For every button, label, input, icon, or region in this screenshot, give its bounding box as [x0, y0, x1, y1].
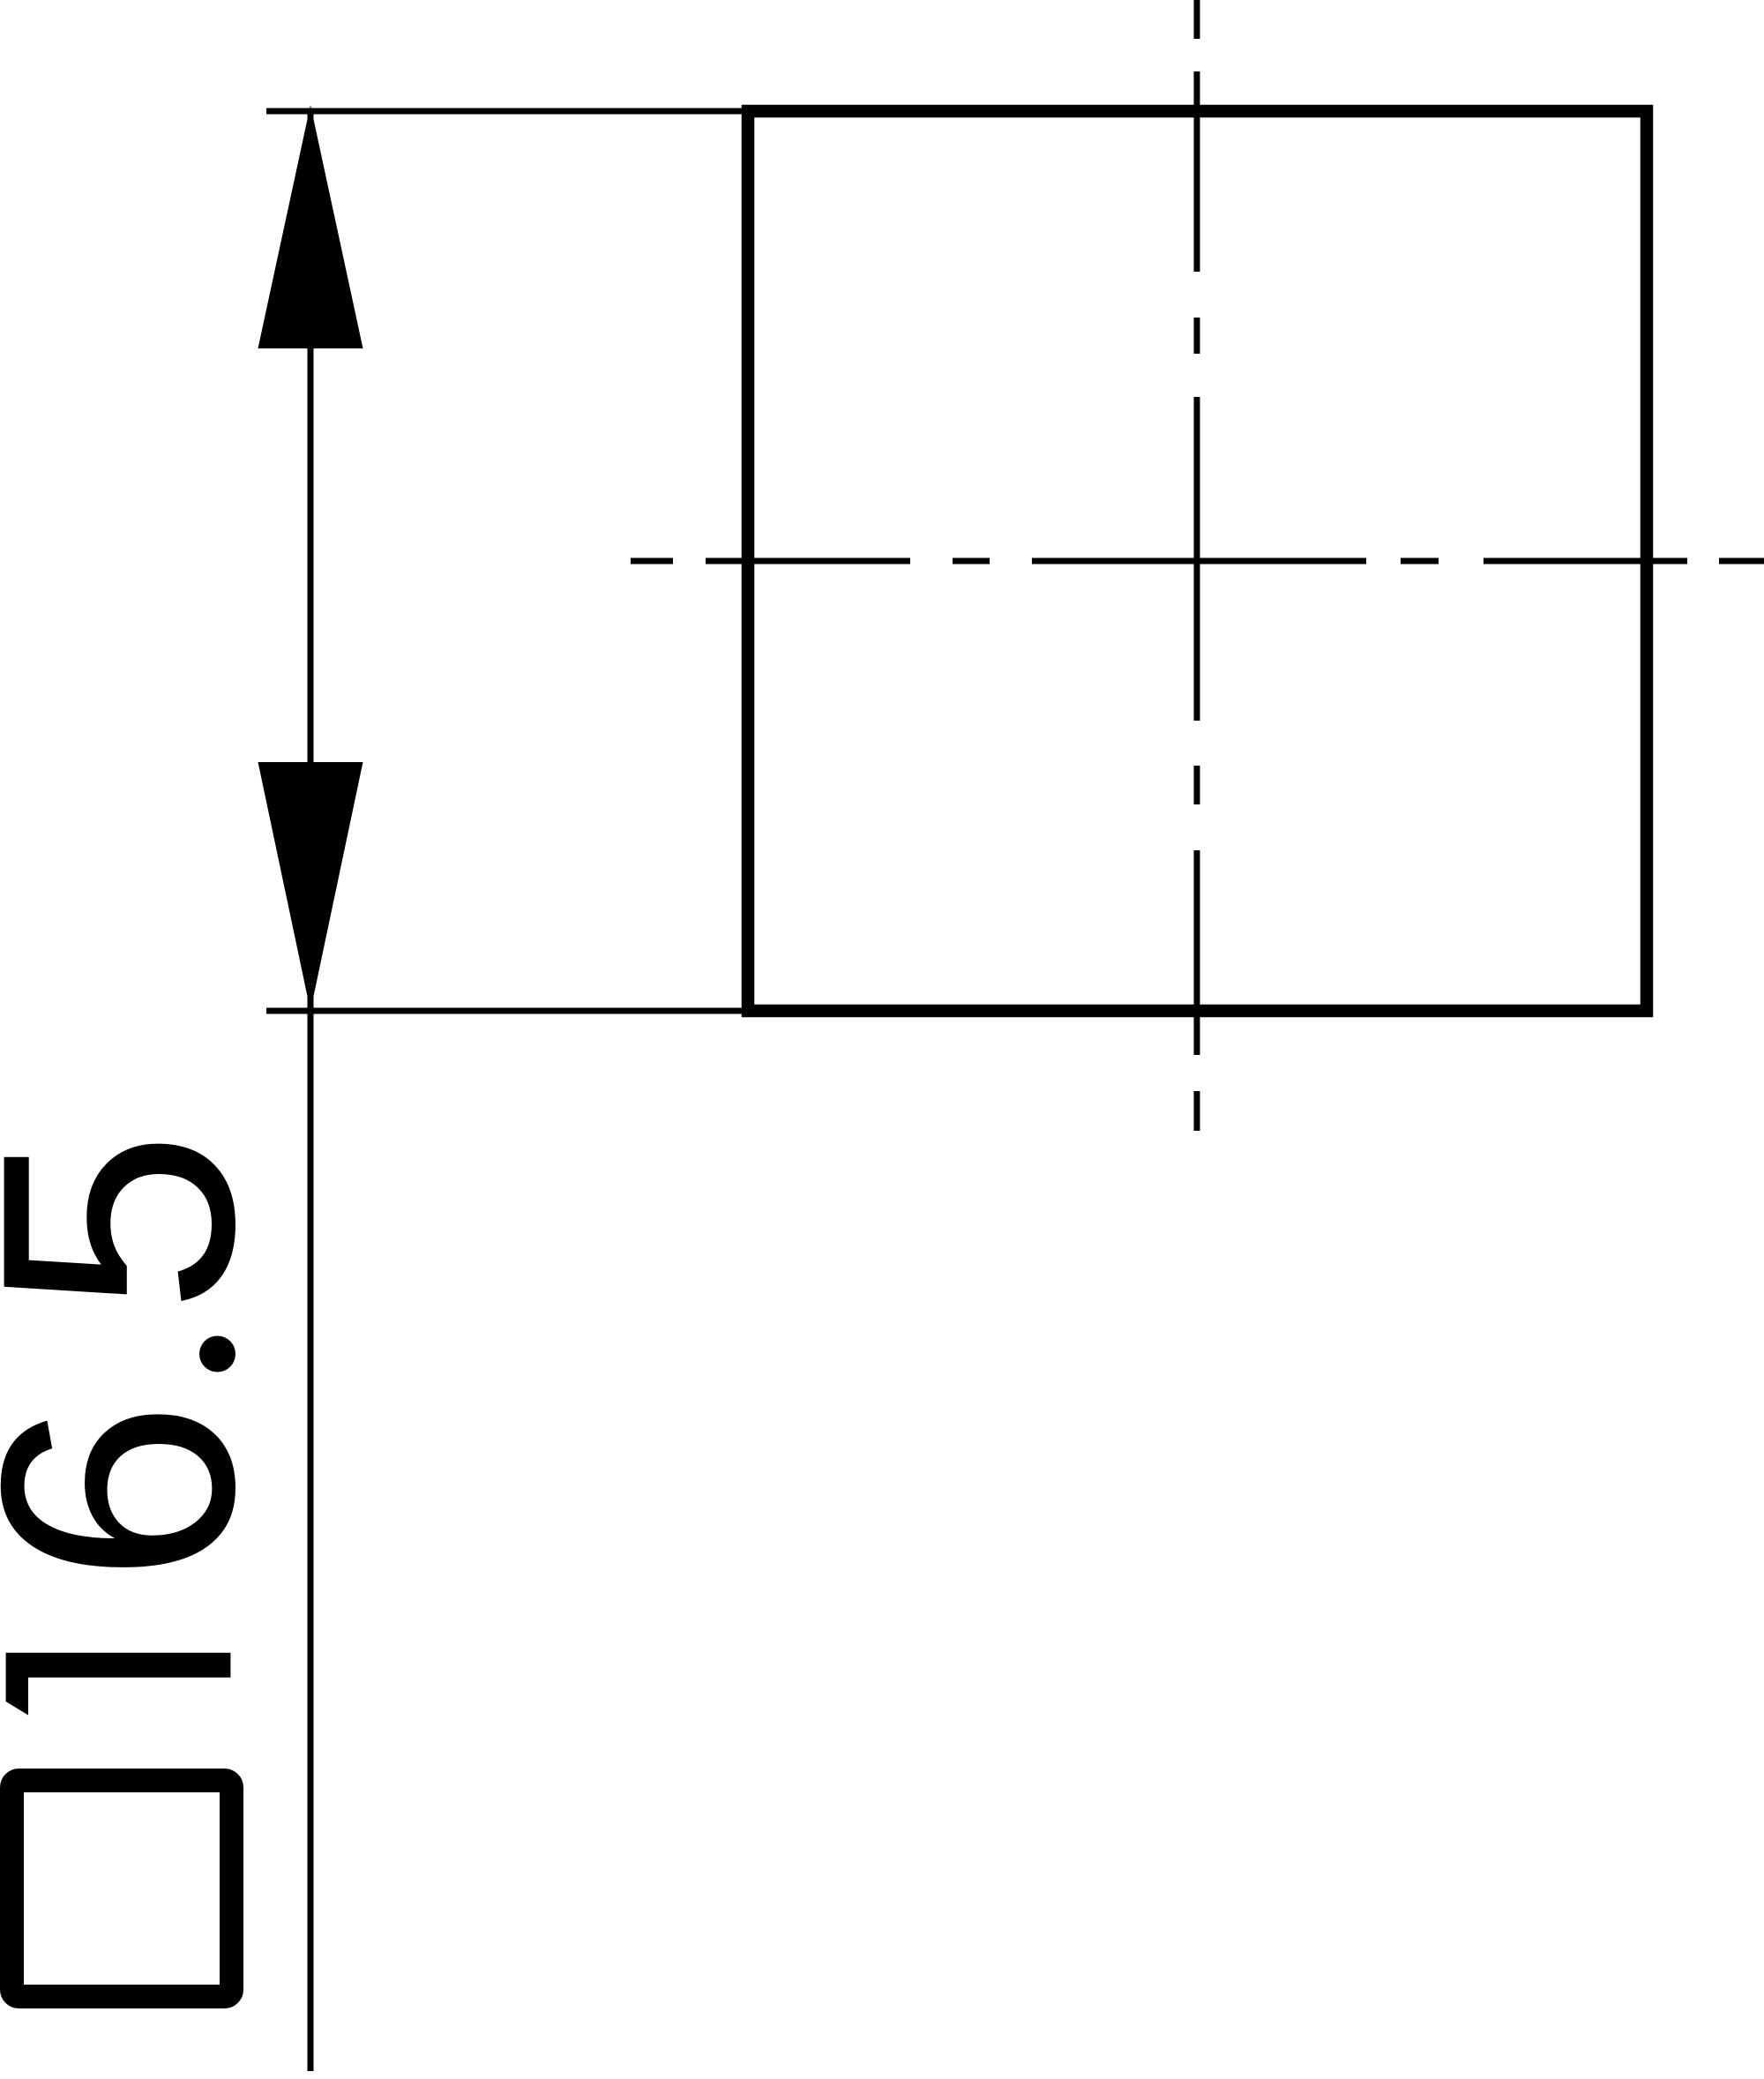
svg-text:5: 5: [0, 1130, 303, 1314]
svg-text:6: 6: [0, 1400, 303, 1584]
